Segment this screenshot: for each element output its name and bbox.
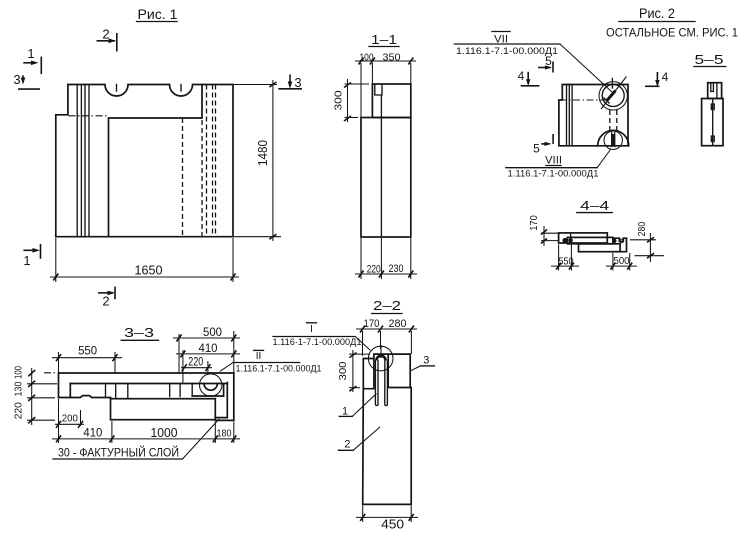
svg-text:550: 550 xyxy=(559,255,574,267)
svg-text:4–4: 4–4 xyxy=(580,199,609,213)
svg-text:I: I xyxy=(310,324,313,335)
svg-text:100: 100 xyxy=(360,53,374,64)
svg-text:1.116.1-7.1-00.000Д1: 1.116.1-7.1-00.000Д1 xyxy=(456,46,558,57)
svg-text:500: 500 xyxy=(614,255,630,267)
svg-text:2: 2 xyxy=(344,439,350,451)
svg-text:3: 3 xyxy=(294,75,301,90)
svg-text:550: 550 xyxy=(78,344,97,358)
svg-text:II: II xyxy=(256,351,262,362)
svg-text:180: 180 xyxy=(217,428,232,440)
svg-text:Рис. 1: Рис. 1 xyxy=(138,6,178,22)
svg-text:220: 220 xyxy=(367,264,381,276)
svg-text:VIII: VIII xyxy=(545,155,562,167)
svg-text:410: 410 xyxy=(199,341,218,355)
svg-text:30 - ФАКТУРНЫЙ СЛОЙ: 30 - ФАКТУРНЫЙ СЛОЙ xyxy=(58,445,179,460)
svg-text:500: 500 xyxy=(203,325,222,339)
svg-text:450: 450 xyxy=(381,518,404,532)
svg-text:100: 100 xyxy=(13,366,25,379)
svg-text:1650: 1650 xyxy=(135,263,163,278)
svg-text:5: 5 xyxy=(533,142,540,156)
svg-text:130: 130 xyxy=(13,381,25,396)
svg-text:1.116.1-7.1-00.000Д1: 1.116.1-7.1-00.000Д1 xyxy=(508,169,599,180)
svg-text:300: 300 xyxy=(338,361,349,380)
svg-text:4: 4 xyxy=(662,70,669,84)
svg-text:3: 3 xyxy=(423,355,429,367)
svg-text:ОСТАЛЬНОЕ СМ. РИС. 1: ОСТАЛЬНОЕ СМ. РИС. 1 xyxy=(606,26,738,40)
svg-text:1: 1 xyxy=(27,46,34,61)
svg-text:350: 350 xyxy=(383,52,401,64)
svg-text:170: 170 xyxy=(529,215,540,231)
svg-text:170: 170 xyxy=(364,318,380,330)
svg-text:280: 280 xyxy=(637,221,648,236)
svg-text:280: 280 xyxy=(389,318,407,330)
svg-text:4: 4 xyxy=(518,69,525,83)
svg-text:Рис. 2: Рис. 2 xyxy=(639,5,675,21)
svg-text:200: 200 xyxy=(62,413,78,425)
svg-text:1: 1 xyxy=(23,253,30,268)
svg-text:3–3: 3–3 xyxy=(124,326,154,340)
svg-text:300: 300 xyxy=(334,90,345,111)
svg-text:3: 3 xyxy=(13,72,20,87)
svg-text:220: 220 xyxy=(13,402,25,419)
svg-text:1480: 1480 xyxy=(256,140,270,166)
svg-text:1.116·1-7.1-00.000Д1: 1.116·1-7.1-00.000Д1 xyxy=(273,337,362,348)
svg-text:220: 220 xyxy=(188,356,203,368)
svg-text:1: 1 xyxy=(342,406,348,418)
svg-text:5–5: 5–5 xyxy=(695,53,724,67)
svg-text:410: 410 xyxy=(83,428,102,440)
svg-text:2: 2 xyxy=(102,294,109,309)
svg-text:1.116.1-7.1-00.000Д1: 1.116.1-7.1-00.000Д1 xyxy=(236,364,322,375)
svg-text:230: 230 xyxy=(389,263,404,275)
svg-text:1–1: 1–1 xyxy=(371,33,397,47)
svg-text:1000: 1000 xyxy=(151,426,178,440)
svg-text:2–2: 2–2 xyxy=(373,299,401,313)
